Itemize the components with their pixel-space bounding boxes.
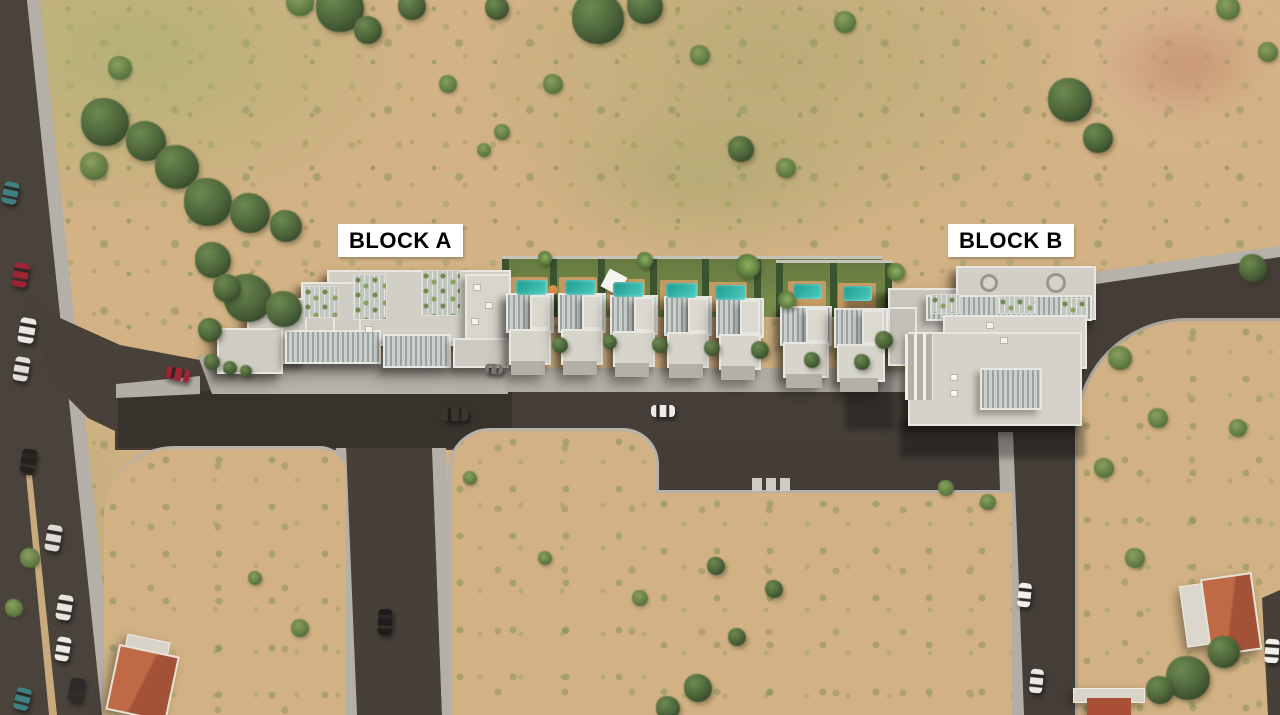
site-plan-render: BLOCK A BLOCK B <box>0 0 1280 715</box>
tree <box>1258 42 1278 62</box>
car <box>1028 668 1043 693</box>
swimming-pool <box>793 284 822 299</box>
tree <box>572 0 624 44</box>
car <box>651 405 675 417</box>
tree <box>81 98 129 146</box>
tree <box>603 335 617 349</box>
car <box>485 363 504 374</box>
tree <box>804 352 820 368</box>
tree <box>1125 548 1145 568</box>
car <box>54 593 73 620</box>
tree <box>485 0 509 20</box>
tree <box>354 16 382 44</box>
tree <box>1108 346 1132 370</box>
car <box>54 636 72 662</box>
tree <box>1146 676 1174 704</box>
palm-tree <box>778 291 796 309</box>
tree <box>198 318 222 342</box>
tree <box>240 365 252 377</box>
tree <box>875 331 893 349</box>
tree <box>80 152 108 180</box>
tree <box>20 548 40 568</box>
tree <box>494 124 510 140</box>
tree <box>854 354 870 370</box>
tree <box>1239 254 1267 282</box>
block-a-label: BLOCK A <box>338 224 463 257</box>
swimming-pool <box>565 280 596 295</box>
tree <box>248 571 262 585</box>
tree <box>184 178 232 226</box>
tree <box>776 158 796 178</box>
palm-tree <box>637 252 653 268</box>
tree <box>980 494 996 510</box>
car <box>442 408 468 421</box>
tree <box>1048 78 1092 122</box>
tree <box>195 242 231 278</box>
tree <box>652 337 668 353</box>
swimming-pool <box>516 280 547 295</box>
tree <box>1208 636 1240 668</box>
tree <box>213 274 241 302</box>
tree <box>398 0 426 20</box>
car <box>17 316 37 343</box>
palm-tree <box>887 263 905 281</box>
palm-tree <box>538 251 552 265</box>
tree <box>552 337 568 353</box>
tree <box>5 599 23 617</box>
tree <box>728 628 746 646</box>
car <box>1016 582 1031 607</box>
swimming-pool <box>843 286 872 301</box>
tree <box>1083 123 1113 153</box>
car <box>165 365 191 383</box>
tree <box>439 75 457 93</box>
generated-scene-objects <box>0 0 1280 715</box>
tree <box>477 143 491 157</box>
car <box>377 609 392 636</box>
car <box>0 181 19 206</box>
tree <box>286 0 314 16</box>
tree <box>627 0 663 24</box>
tree <box>751 341 769 359</box>
palm-tree <box>736 254 760 278</box>
tree <box>204 354 220 370</box>
tree <box>108 56 132 80</box>
car <box>12 356 31 382</box>
tree <box>266 291 302 327</box>
tree <box>690 45 710 65</box>
tree <box>765 580 783 598</box>
car <box>1264 639 1280 664</box>
swimming-pool <box>613 282 644 297</box>
tree <box>463 471 477 485</box>
tree <box>538 551 552 565</box>
block-b-label: BLOCK B <box>948 224 1074 257</box>
tree <box>684 674 712 702</box>
tree <box>223 361 237 375</box>
swimming-pool <box>715 285 746 300</box>
car <box>12 687 32 712</box>
tree <box>707 557 725 575</box>
tree <box>834 11 856 33</box>
tree <box>270 210 302 242</box>
tree <box>230 193 270 233</box>
tree <box>1094 458 1114 478</box>
tree <box>704 340 720 356</box>
tree <box>656 696 680 715</box>
car <box>67 677 86 703</box>
swimming-pool <box>666 283 697 298</box>
tree <box>632 590 648 606</box>
tree <box>291 619 309 637</box>
tree <box>728 136 754 162</box>
tree <box>543 74 563 94</box>
tree <box>938 480 954 496</box>
car <box>43 524 62 552</box>
tree <box>1148 408 1168 428</box>
tree <box>1216 0 1240 20</box>
tree <box>1229 419 1247 437</box>
car <box>11 262 30 288</box>
car <box>19 448 38 474</box>
